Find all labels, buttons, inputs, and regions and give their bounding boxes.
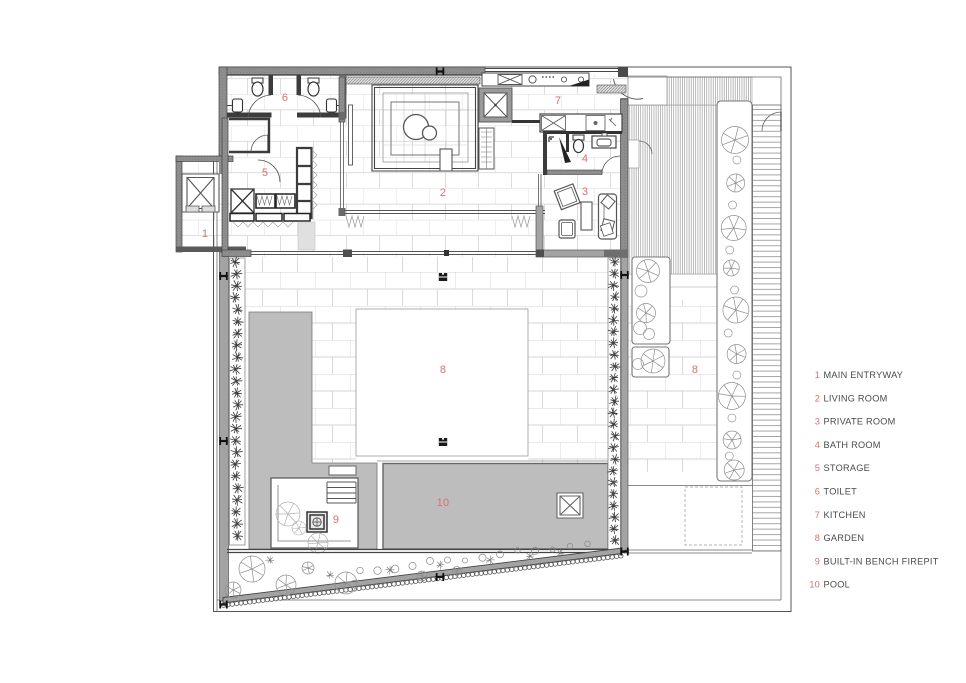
svg-text:BATH ROOM: BATH ROOM — [824, 440, 881, 450]
svg-text:PRIVATE ROOM: PRIVATE ROOM — [824, 417, 896, 427]
svg-text:6: 6 — [282, 92, 288, 104]
svg-text:1: 1 — [815, 370, 820, 380]
svg-text:8: 8 — [692, 364, 698, 376]
svg-text:5: 5 — [815, 463, 820, 473]
svg-text:5: 5 — [262, 167, 268, 179]
svg-text:TOILET: TOILET — [824, 487, 858, 497]
svg-text:GARDEN: GARDEN — [824, 533, 865, 543]
svg-text:7: 7 — [555, 95, 561, 107]
svg-text:6: 6 — [815, 487, 820, 497]
svg-text:3: 3 — [815, 417, 820, 427]
svg-text:2: 2 — [815, 393, 820, 403]
svg-text:10: 10 — [809, 580, 820, 590]
svg-text:8: 8 — [440, 364, 446, 376]
svg-text:9: 9 — [815, 556, 820, 566]
svg-text:MAIN ENTRYWAY: MAIN ENTRYWAY — [824, 370, 904, 380]
svg-text:7: 7 — [815, 510, 820, 520]
svg-text:4: 4 — [815, 440, 820, 450]
svg-text:2: 2 — [440, 187, 446, 199]
svg-text:8: 8 — [815, 533, 820, 543]
svg-text:STORAGE: STORAGE — [824, 463, 871, 473]
svg-text:3: 3 — [582, 186, 588, 198]
svg-text:KITCHEN: KITCHEN — [824, 510, 866, 520]
svg-text:9: 9 — [333, 514, 339, 526]
svg-text:LIVING ROOM: LIVING ROOM — [824, 393, 888, 403]
svg-text:POOL: POOL — [824, 580, 851, 590]
svg-text:4: 4 — [582, 153, 588, 165]
svg-text:10: 10 — [437, 497, 450, 509]
svg-text:1: 1 — [202, 228, 208, 240]
svg-text:BUILT-IN BENCH FIREPIT: BUILT-IN BENCH FIREPIT — [824, 556, 939, 566]
